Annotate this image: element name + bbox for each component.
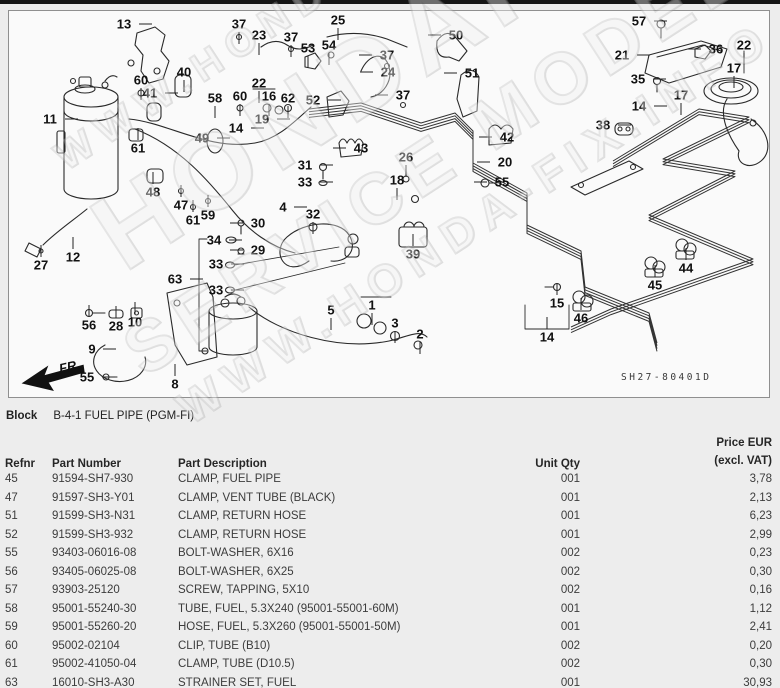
callout-number: 36 — [709, 42, 723, 57]
callout-number: 62 — [281, 91, 295, 106]
table-row: 6195002-41050-04CLAMP, TUBE (D10.5)0020,… — [0, 655, 780, 674]
callout-number: 43 — [354, 141, 368, 156]
cell-price: 0,20 — [652, 637, 772, 656]
callout-number: 23 — [252, 28, 266, 43]
cell-refnr: 61 — [5, 655, 18, 674]
callout-number: 32 — [306, 207, 320, 222]
column-header-price-line2: (excl. VAT) — [622, 452, 772, 470]
table-row: 5995001-55260-20HOSE, FUEL, 5.3X260 (950… — [0, 618, 780, 637]
callout-number: 54 — [322, 38, 336, 53]
cell-description: CLIP, TUBE (B10) — [178, 637, 270, 656]
callout-number: 37 — [232, 17, 246, 32]
callout-number: 41 — [143, 86, 157, 101]
cell-price: 1,12 — [652, 600, 772, 619]
callout-number: 16 — [262, 89, 276, 104]
callout-number: 56 — [82, 318, 96, 333]
cell-refnr: 51 — [5, 507, 18, 526]
cell-refnr: 47 — [5, 489, 18, 508]
callout-number: 2 — [416, 327, 423, 342]
callout-number: 8 — [171, 377, 178, 392]
table-row: 5191599-SH3-N31CLAMP, RETURN HOSE0016,23 — [0, 507, 780, 526]
cell-price: 0,23 — [652, 544, 772, 563]
callout-number: 22 — [737, 38, 751, 53]
callout-number: 34 — [207, 233, 221, 248]
callout-number: 29 — [251, 243, 265, 258]
table-row: 6316010-SH3-A30STRAINER SET, FUEL00130,9… — [0, 674, 780, 688]
table-row: 5291599-SH3-932CLAMP, RETURN HOSE0012,99 — [0, 526, 780, 545]
callout-number: 20 — [498, 155, 512, 170]
cell-unit-qty: 001 — [460, 470, 580, 489]
cell-unit-qty: 001 — [460, 507, 580, 526]
callout-number: 55 — [495, 175, 509, 190]
parts-diagram-panel: 1337232537535437246040415860221662521119… — [8, 10, 770, 398]
cell-part-number: 95001-55240-30 — [52, 600, 136, 619]
cell-unit-qty: 002 — [460, 655, 580, 674]
callout-number: 4 — [279, 200, 286, 215]
callout-number: 63 — [168, 272, 182, 287]
table-row: 5593403-06016-08BOLT-WASHER, 6X160020,23 — [0, 544, 780, 563]
table-body: 4591594-SH7-930CLAMP, FUEL PIPE0013,7847… — [0, 470, 780, 688]
callout-number: 12 — [66, 250, 80, 265]
cell-refnr: 59 — [5, 618, 18, 637]
cell-unit-qty: 002 — [460, 544, 580, 563]
callout-number: 28 — [109, 319, 123, 334]
callout-number: 52 — [306, 93, 320, 108]
parts-catalog-page: 1337232537535437246040415860221662521119… — [0, 0, 780, 688]
callout-number: 33 — [209, 283, 223, 298]
callout-number: 9 — [88, 342, 95, 357]
callout-number: 47 — [174, 198, 188, 213]
cell-part-number: 91597-SH3-Y01 — [52, 489, 134, 508]
callout-number: 11 — [43, 112, 57, 127]
cell-unit-qty: 001 — [460, 526, 580, 545]
callout-number: 14 — [229, 121, 243, 136]
callout-number: 44 — [679, 261, 693, 276]
cell-price: 6,23 — [652, 507, 772, 526]
callout-number: 59 — [201, 208, 215, 223]
cell-unit-qty: 001 — [460, 600, 580, 619]
block-heading: BlockB-4-1 FUEL PIPE (PGM-FI) — [6, 410, 194, 422]
cell-part-number: 91594-SH7-930 — [52, 470, 133, 489]
table-header: Refnr Part Number Part Description Unit … — [0, 433, 780, 470]
column-header-refnr: Refnr — [5, 458, 35, 470]
cell-price: 0,16 — [652, 581, 772, 600]
callout-number: 3 — [391, 316, 398, 331]
cell-part-number: 95001-55260-20 — [52, 618, 136, 637]
callout-number: 60 — [233, 89, 247, 104]
column-header-price-line1: Price EUR — [622, 434, 772, 452]
callout-number: 39 — [406, 247, 420, 262]
callout-number: 21 — [615, 48, 629, 63]
callout-number: 42 — [500, 130, 514, 145]
cell-unit-qty: 002 — [460, 581, 580, 600]
callout-number: 19 — [255, 112, 269, 127]
table-row: 4791597-SH3-Y01CLAMP, VENT TUBE (BLACK)0… — [0, 489, 780, 508]
cell-part-number: 95002-02104 — [52, 637, 120, 656]
block-value: B-4-1 FUEL PIPE (PGM-FI) — [53, 410, 194, 422]
callout-number: 24 — [381, 65, 395, 80]
callout-number: 49 — [195, 131, 209, 146]
cell-refnr: 57 — [5, 581, 18, 600]
cell-part-number: 93405-06025-08 — [52, 563, 136, 582]
callout-number: 25 — [331, 13, 345, 28]
cell-refnr: 60 — [5, 637, 18, 656]
callout-number: 50 — [449, 28, 463, 43]
callout-number: 13 — [117, 17, 131, 32]
callout-number: 5 — [327, 303, 334, 318]
table-row: 5693405-06025-08BOLT-WASHER, 6X250020,30 — [0, 563, 780, 582]
cell-part-number: 16010-SH3-A30 — [52, 674, 134, 688]
block-label: Block — [6, 410, 37, 422]
cell-unit-qty: 001 — [460, 674, 580, 688]
column-header-part-number: Part Number — [52, 458, 121, 470]
callout-number: 27 — [34, 258, 48, 273]
column-header-price: Price EUR (excl. VAT) — [622, 434, 772, 470]
diagram-code: SH27-80401D — [621, 372, 711, 383]
callout-number: 58 — [208, 91, 222, 106]
cell-description: CLAMP, FUEL PIPE — [178, 470, 281, 489]
cell-description: TUBE, FUEL, 5.3X240 (95001-55001-60M) — [178, 600, 399, 619]
cell-part-number: 93903-25120 — [52, 581, 120, 600]
cell-description: CLAMP, RETURN HOSE — [178, 526, 306, 545]
cell-refnr: 63 — [5, 674, 18, 688]
cell-price: 2,99 — [652, 526, 772, 545]
callout-number: 15 — [550, 296, 564, 311]
callout-number: 26 — [399, 150, 413, 165]
callout-number: 17 — [674, 88, 688, 103]
cell-description: BOLT-WASHER, 6X16 — [178, 544, 294, 563]
top-divider-bar — [0, 0, 780, 4]
cell-description: BOLT-WASHER, 6X25 — [178, 563, 294, 582]
cell-price: 0,30 — [652, 655, 772, 674]
callout-number: 53 — [301, 41, 315, 56]
cell-unit-qty: 001 — [460, 489, 580, 508]
column-header-unit-qty: Unit Qty — [460, 458, 580, 470]
cell-price: 0,30 — [652, 563, 772, 582]
callout-number: 33 — [298, 175, 312, 190]
cell-refnr: 45 — [5, 470, 18, 489]
cell-description: CLAMP, VENT TUBE (BLACK) — [178, 489, 335, 508]
cell-unit-qty: 002 — [460, 563, 580, 582]
cell-price: 3,78 — [652, 470, 772, 489]
table-row: 6095002-02104CLIP, TUBE (B10)0020,20 — [0, 637, 780, 656]
callout-number: 31 — [298, 158, 312, 173]
callout-number: 61 — [186, 213, 200, 228]
cell-price: 2,41 — [652, 618, 772, 637]
callout-number: 17 — [727, 61, 741, 76]
cell-part-number: 91599-SH3-N31 — [52, 507, 135, 526]
callout-number: 35 — [631, 72, 645, 87]
callout-number: 14 — [632, 99, 646, 114]
callout-number: 14 — [540, 330, 554, 345]
cell-refnr: 58 — [5, 600, 18, 619]
cell-price: 30,93 — [652, 674, 772, 688]
cell-part-number: 91599-SH3-932 — [52, 526, 133, 545]
cell-description: CLAMP, TUBE (D10.5) — [178, 655, 295, 674]
cell-description: SCREW, TAPPING, 5X10 — [178, 581, 309, 600]
cell-part-number: 95002-41050-04 — [52, 655, 136, 674]
cell-refnr: 52 — [5, 526, 18, 545]
table-row: 4591594-SH7-930CLAMP, FUEL PIPE0013,78 — [0, 470, 780, 489]
callout-number: 40 — [177, 65, 191, 80]
callout-number: 57 — [632, 14, 646, 29]
cell-unit-qty: 001 — [460, 618, 580, 637]
parts-table: Refnr Part Number Part Description Unit … — [0, 433, 780, 688]
callout-number: 10 — [128, 315, 142, 330]
cell-description: STRAINER SET, FUEL — [178, 674, 296, 688]
cell-refnr: 56 — [5, 563, 18, 582]
column-header-description: Part Description — [178, 458, 267, 470]
callout-number: 37 — [380, 48, 394, 63]
callout-number: 30 — [251, 216, 265, 231]
fr-direction-arrow: FR. — [19, 357, 99, 397]
cell-unit-qty: 002 — [460, 637, 580, 656]
cell-description: HOSE, FUEL, 5.3X260 (95001-55001-50M) — [178, 618, 400, 637]
cell-part-number: 93403-06016-08 — [52, 544, 136, 563]
callout-number: 37 — [284, 30, 298, 45]
cell-description: CLAMP, RETURN HOSE — [178, 507, 306, 526]
callout-number: 1 — [368, 298, 375, 313]
cell-price: 2,13 — [652, 489, 772, 508]
callout-number: 48 — [146, 185, 160, 200]
callout-layer: 1337232537535437246040415860221662521119… — [9, 11, 769, 397]
callout-number: 51 — [465, 66, 479, 81]
callout-number: 18 — [390, 173, 404, 188]
callout-number: 33 — [209, 257, 223, 272]
table-row: 5793903-25120SCREW, TAPPING, 5X100020,16 — [0, 581, 780, 600]
cell-refnr: 55 — [5, 544, 18, 563]
table-row: 5895001-55240-30TUBE, FUEL, 5.3X240 (950… — [0, 600, 780, 619]
callout-number: 37 — [396, 88, 410, 103]
callout-number: 61 — [131, 141, 145, 156]
callout-number: 46 — [574, 311, 588, 326]
callout-number: 38 — [596, 118, 610, 133]
callout-number: 45 — [648, 278, 662, 293]
